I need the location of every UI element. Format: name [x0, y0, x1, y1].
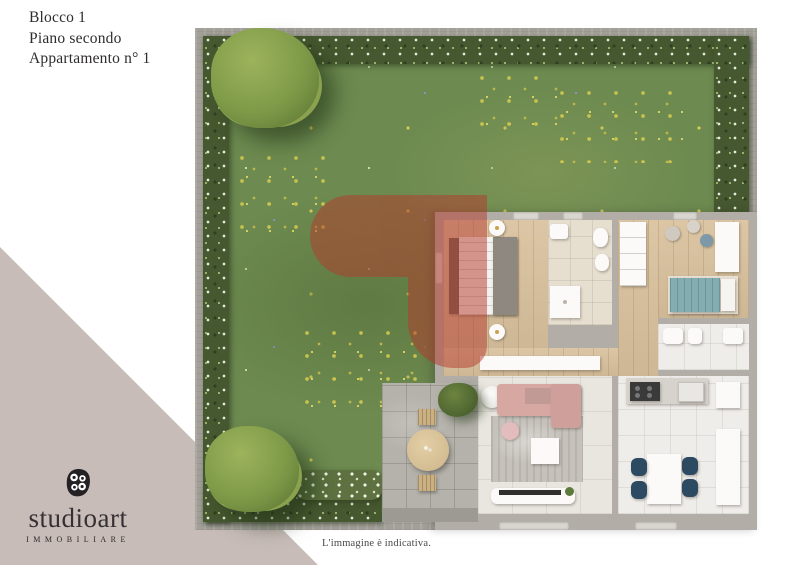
window-sliding-door: [499, 522, 569, 530]
studioart-watermark: [310, 195, 487, 368]
burner: [647, 393, 652, 398]
flower-patch: [475, 73, 560, 133]
sideboard: [716, 429, 740, 505]
sofa-throw: [525, 388, 551, 404]
sofa-chaise: [551, 384, 581, 428]
bidet: [595, 254, 609, 271]
burner: [647, 386, 652, 391]
coffee-table: [531, 438, 559, 464]
cooktop: [630, 382, 660, 401]
shower-drain: [563, 300, 567, 304]
brand-name: studioart: [0, 504, 156, 532]
dining-table: [647, 454, 681, 504]
toilet: [593, 228, 608, 247]
pouf: [665, 226, 680, 241]
apartment-label: Appartamento n° 1: [29, 49, 151, 70]
window: [635, 522, 677, 530]
bidet: [688, 328, 702, 344]
floor-label: Piano secondo: [29, 29, 151, 50]
hall-closet: [620, 222, 646, 286]
tree-top-left: [211, 28, 319, 128]
bed2-blanket: [670, 278, 720, 312]
brand-logo: studioart IMMOBILIARE: [0, 468, 156, 544]
bathroom2-sink: [723, 328, 743, 344]
brand-tagline: IMMOBILIARE: [0, 535, 156, 544]
burner: [635, 386, 640, 391]
block-label: Blocco 1: [29, 8, 151, 29]
desk-chair: [700, 234, 713, 247]
nightstand-lamp: [495, 226, 499, 230]
brochure-page: Blocco 1 Piano secondo Appartamento n° 1: [0, 0, 800, 565]
desk: [715, 222, 739, 272]
window: [563, 212, 583, 220]
dining-chair: [631, 458, 647, 476]
dining-chair: [682, 479, 698, 497]
nightstand-lamp: [495, 330, 499, 334]
bed-blanket: [493, 237, 517, 315]
pouf-pink: [501, 422, 519, 440]
plant: [565, 487, 574, 496]
dining-chair: [631, 481, 647, 499]
dining-chair: [682, 457, 698, 475]
flowering-shrub-strip: [295, 470, 383, 500]
bed2-pillow: [721, 279, 735, 311]
fridge: [716, 382, 740, 408]
table-flowers: [423, 445, 433, 453]
plan-header: Blocco 1 Piano secondo Appartamento n° 1: [29, 8, 151, 70]
toilet: [663, 328, 683, 344]
hedge-right: [714, 36, 749, 212]
tv: [499, 490, 561, 495]
flower-patch: [555, 88, 685, 163]
studioart-dots-icon: [64, 468, 92, 498]
floorplan-render: [195, 28, 757, 530]
outdoor-bench: [418, 409, 436, 425]
wardrobe: [480, 356, 600, 370]
window: [673, 212, 697, 220]
outdoor-bench: [418, 475, 436, 491]
disclaimer-text: L'immagine è indicativa.: [322, 538, 431, 549]
patio-edge: [382, 508, 478, 522]
outdoor-table: [407, 429, 449, 471]
tree-bottom-left: [205, 426, 299, 512]
pouf: [687, 220, 700, 233]
kitchen-sink: [678, 382, 704, 402]
window: [513, 212, 539, 220]
watermark-shape-vertical: [408, 195, 487, 368]
burner: [635, 393, 640, 398]
bathroom-sink: [550, 224, 568, 239]
